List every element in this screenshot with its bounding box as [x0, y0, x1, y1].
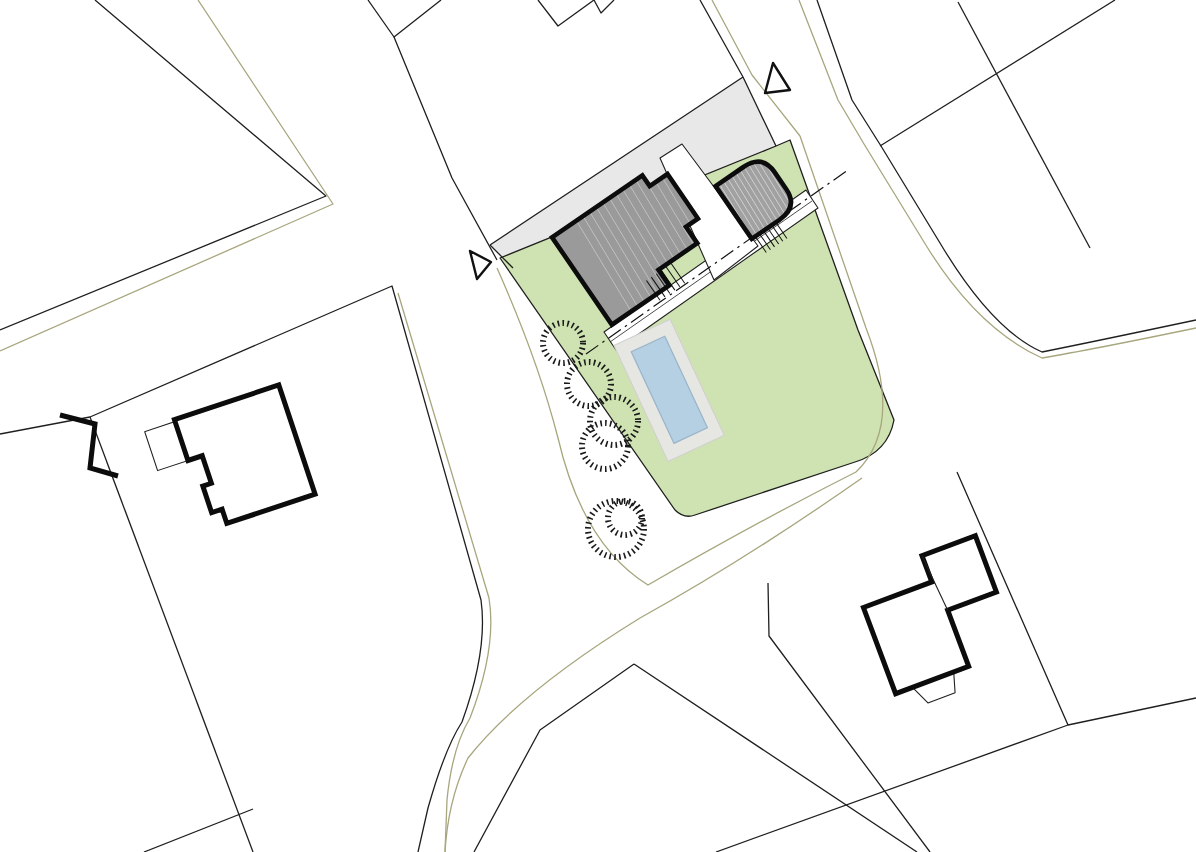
shrub-circle-5	[588, 501, 644, 557]
parcel-line-topright-2	[880, 0, 1115, 146]
neighbor-house-west-group	[144, 385, 315, 539]
neighbor-house-west	[174, 385, 315, 529]
parcel-line-topleft	[0, 0, 326, 330]
parcel-line-left-bottom	[144, 809, 253, 852]
olive-line-sweep	[445, 478, 862, 852]
neighbor-house-east	[854, 536, 1018, 694]
shrub-circle-6	[608, 501, 642, 535]
parcel-line-w-notch	[538, 0, 614, 26]
parcel-line-left	[0, 286, 482, 852]
road-edge-west-upper	[394, 37, 497, 260]
olive-line-top-road-east	[799, 0, 1196, 358]
parcel-line-topright-1	[958, 2, 1090, 248]
olive-line-topleft	[0, 0, 333, 351]
site-plan-canvas	[0, 0, 1196, 852]
olive-line-left-road	[398, 293, 491, 852]
parcel-line-south-peak	[474, 664, 917, 852]
parcel-line-v-notch	[368, 0, 441, 37]
neighbor-house-east-group	[854, 536, 1025, 713]
site-plan-svg	[0, 0, 1196, 852]
entrance-marker-north	[765, 63, 790, 93]
entrance-marker-west	[470, 251, 491, 279]
road-edge-east	[817, 0, 1196, 352]
